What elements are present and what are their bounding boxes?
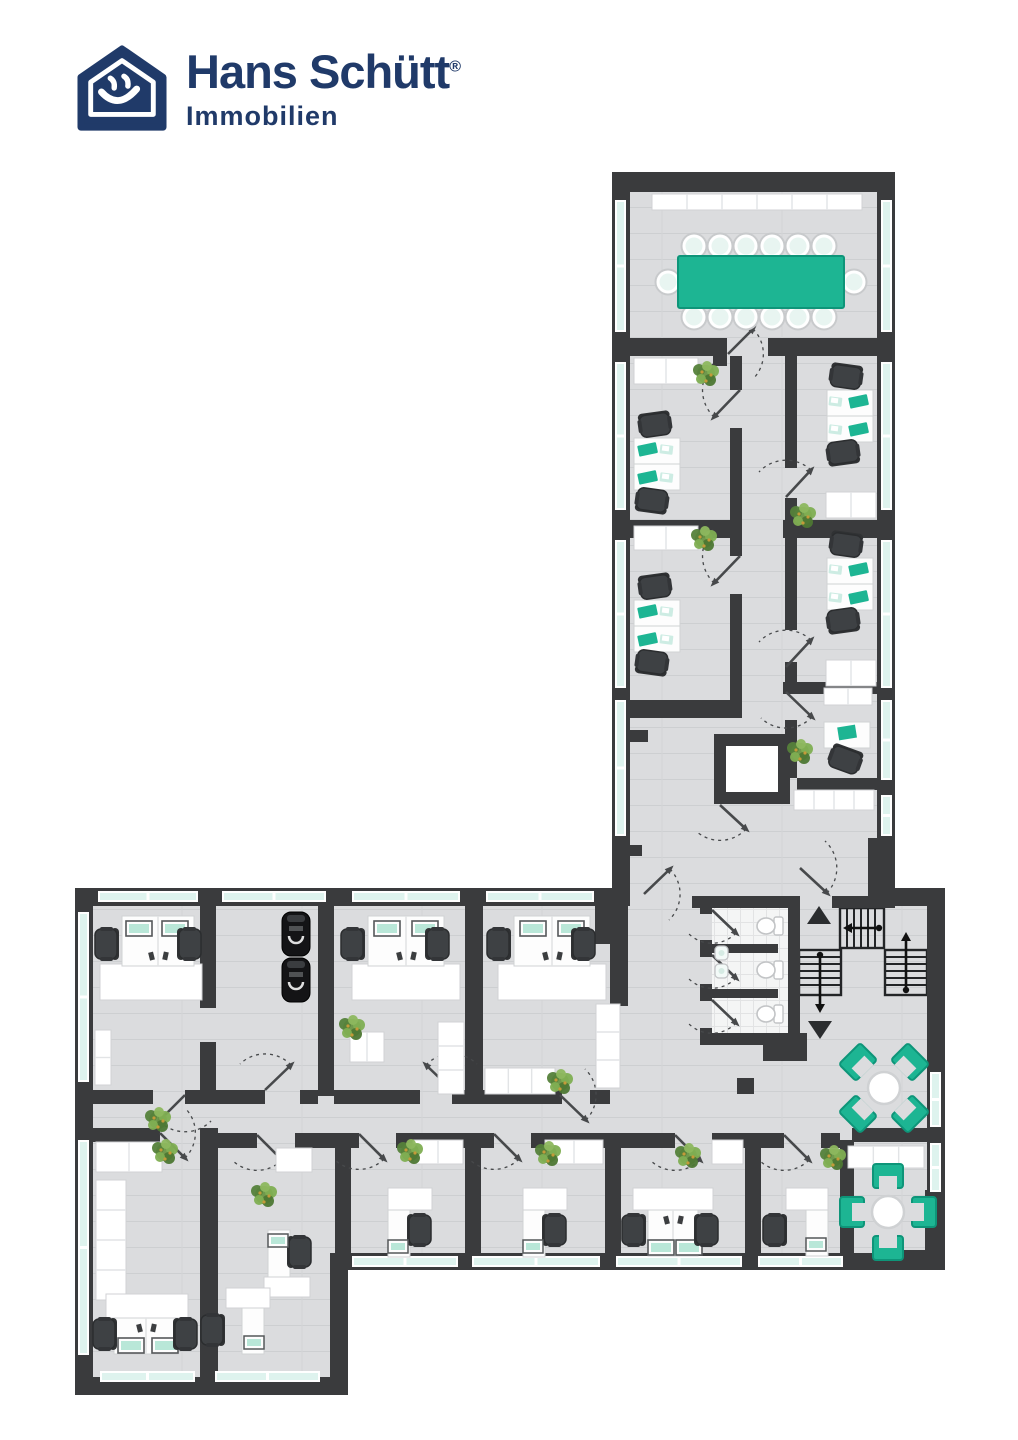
office-chair [201, 1313, 225, 1347]
sideboard [634, 526, 698, 550]
window [472, 1256, 600, 1267]
office-chair [407, 1213, 431, 1247]
window [78, 912, 89, 1082]
office-chair [825, 607, 862, 635]
wall [768, 338, 877, 356]
monitor-icon [374, 921, 400, 936]
black-lounge-chair [282, 958, 310, 1002]
office-chair [425, 927, 449, 961]
wall [93, 1090, 153, 1104]
monitor-icon [118, 1338, 144, 1353]
wall [868, 838, 895, 905]
wall [785, 356, 797, 468]
window [615, 700, 626, 836]
conference-chair [760, 234, 785, 259]
wall [465, 906, 483, 1096]
floorplan [0, 0, 1018, 1440]
lounge-table [868, 1072, 900, 1104]
wall [630, 700, 742, 718]
window [222, 891, 326, 902]
sideboard [485, 1068, 555, 1094]
toilet-icon [757, 1005, 783, 1023]
toilet-icon [757, 917, 783, 935]
lounge-table [872, 1196, 904, 1228]
conference-chair [842, 270, 867, 295]
office-chair [825, 439, 862, 467]
wall [465, 1133, 481, 1270]
wall [200, 1042, 216, 1090]
wall [590, 1090, 610, 1104]
wall [318, 906, 334, 1096]
wall [621, 1133, 675, 1148]
wall [788, 906, 800, 1045]
monitor-icon [126, 921, 152, 936]
sideboard [96, 1180, 126, 1300]
lounge-chair [911, 1197, 936, 1227]
office-chair [287, 1235, 311, 1269]
office-chair [633, 487, 670, 515]
window [98, 891, 198, 902]
sideboard [826, 660, 876, 686]
wall [730, 356, 742, 390]
office-chair [487, 927, 511, 961]
pillar [737, 1078, 754, 1094]
double-workstation [93, 1294, 197, 1354]
wall [351, 1133, 359, 1148]
sideboard [824, 688, 872, 705]
wall [481, 1133, 494, 1148]
office-chair [341, 927, 365, 961]
sideboard [96, 1142, 162, 1172]
black-lounge-chair [282, 912, 310, 956]
office-chair [571, 927, 595, 961]
office-chair [93, 1317, 117, 1351]
office-chair [95, 927, 119, 961]
office-chair [763, 1213, 787, 1247]
conference-chair [656, 270, 681, 295]
sideboard [95, 1030, 111, 1085]
window [881, 700, 892, 780]
wall [200, 1128, 218, 1395]
toilet-icon [757, 961, 783, 979]
window [615, 362, 626, 510]
office-chair [622, 1213, 646, 1247]
sink-icon [715, 946, 728, 960]
window [486, 891, 594, 902]
office-chair [828, 530, 865, 558]
wall [612, 888, 630, 906]
conference-set [656, 234, 867, 330]
wall [821, 1133, 840, 1148]
wall [185, 1090, 265, 1104]
wall [93, 1128, 160, 1142]
double-workstation [487, 916, 606, 1000]
monitor-icon [648, 1240, 674, 1255]
wall [612, 172, 895, 192]
sideboard [596, 1004, 620, 1088]
wall [330, 1270, 348, 1395]
window [215, 1371, 320, 1382]
office-chair [636, 572, 673, 600]
wall [761, 1133, 784, 1148]
window [881, 200, 892, 332]
office-chair [636, 410, 673, 438]
sink-icon [715, 964, 728, 978]
double-workstation [622, 1188, 718, 1256]
window [881, 795, 892, 836]
sideboard [634, 358, 698, 384]
window [615, 200, 626, 332]
wall [334, 1090, 420, 1104]
elevator-shaft-interior [726, 746, 778, 792]
monitor-icon [520, 921, 546, 936]
sideboard [652, 194, 862, 210]
single-workstation [264, 1230, 311, 1297]
sideboard [794, 790, 874, 810]
wall [712, 989, 778, 998]
page: Hans Schütt® Immobilien [0, 0, 1018, 1440]
sideboard [276, 1148, 312, 1172]
conference-chair [812, 234, 837, 259]
window [758, 1256, 843, 1267]
office-chair [177, 927, 201, 961]
wall [745, 1133, 761, 1270]
wall [295, 1133, 335, 1148]
office-chair [828, 362, 865, 390]
office-chair [542, 1213, 566, 1247]
lounge-chair [840, 1197, 865, 1227]
wall [895, 888, 945, 906]
office-chair [173, 1317, 197, 1351]
window [352, 1256, 458, 1267]
wall [730, 594, 742, 700]
window [352, 891, 460, 902]
lounge-chair [873, 1164, 903, 1189]
wall [763, 1033, 807, 1061]
lounge-chair [873, 1235, 903, 1260]
window [881, 362, 892, 510]
sideboard [438, 1022, 464, 1094]
wall [595, 906, 628, 944]
conference-chair [682, 234, 707, 259]
conference-chair [734, 234, 759, 259]
window [615, 540, 626, 688]
wall [832, 896, 895, 908]
wall [335, 1133, 351, 1270]
window [78, 1140, 89, 1355]
office-chair [694, 1213, 718, 1247]
window [930, 1072, 941, 1127]
wall [797, 778, 877, 790]
wall [610, 944, 628, 1006]
window [616, 1256, 742, 1267]
conference-table [678, 256, 844, 308]
conference-chair [786, 234, 811, 259]
window [100, 1371, 195, 1382]
wall [612, 845, 642, 856]
wall [713, 338, 727, 366]
sideboard [712, 1140, 743, 1164]
window [930, 1143, 941, 1192]
office-chair [633, 649, 670, 677]
laptop-icon [837, 725, 857, 741]
wall [605, 1133, 621, 1270]
conference-chair [708, 234, 733, 259]
wall [300, 1090, 318, 1104]
double-workstation [95, 916, 202, 1000]
sideboard [826, 492, 876, 518]
window [881, 540, 892, 688]
wall [218, 1133, 257, 1148]
double-workstation [341, 916, 460, 1000]
wall [700, 906, 712, 914]
wall [630, 338, 726, 356]
